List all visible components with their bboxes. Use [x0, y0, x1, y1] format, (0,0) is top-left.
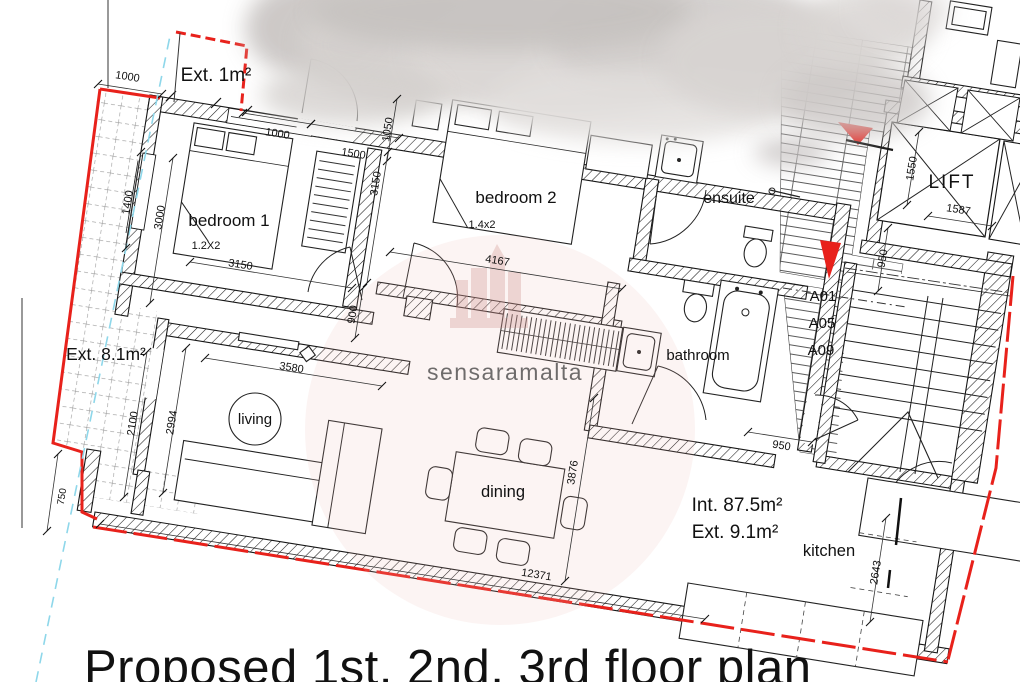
unit-label-a05: A05	[809, 315, 836, 332]
upper-unit-fixture	[946, 1, 992, 35]
censored-blur-region	[260, 65, 440, 125]
balcony-left-edge	[174, 33, 180, 102]
kitchen-counter-div	[851, 588, 908, 597]
area-label-internal: Int. 87.5m²	[692, 495, 783, 516]
dim-text-d3000: 3000	[152, 204, 168, 230]
kitchen-appliance-mark-b	[888, 570, 890, 588]
dim-tick	[182, 344, 190, 352]
unit-label-a01: A01	[810, 288, 837, 305]
area-label-external: Ext. 9.1m²	[692, 522, 779, 543]
censored-blur-region	[780, 62, 930, 138]
dim-tick	[169, 154, 177, 162]
floor-plan-canvas: sensaramalta bedroom 11.2X2bedroom 21.4x…	[0, 0, 1020, 682]
dim-tick	[146, 299, 154, 307]
watermark-text: sensaramalta	[427, 359, 583, 385]
dim-text-d950b: 950	[771, 439, 791, 454]
dim-text-d3150b: 3150	[227, 257, 253, 273]
kitchen-counter-right	[859, 478, 1020, 562]
room-label-bedroom2: bedroom 2	[475, 188, 556, 207]
room-label-bedroom1: bedroom 1	[188, 211, 269, 230]
bed1-size-label: 1.2X2	[192, 240, 221, 252]
dim-text-d2994: 2994	[164, 409, 180, 435]
wall-ensuite-left	[632, 178, 659, 267]
floor-plan-title: Proposed 1st, 2nd, 3rd floor plan	[84, 640, 811, 682]
room-label-living: living	[238, 411, 272, 428]
area-label-terrace: Ext. 8.1m²	[66, 344, 146, 364]
bed2-size-label: 1.4x2	[469, 219, 496, 231]
floor-plan-page: sensaramalta bedroom 11.2X2bedroom 21.4x…	[0, 0, 1020, 682]
room-label-dining: dining	[481, 483, 525, 501]
wall-bedroom1-bottom	[119, 272, 374, 324]
wardrobe-bedroom1	[302, 151, 361, 253]
dim-tick	[744, 428, 752, 436]
ensuite-toilet	[739, 226, 773, 269]
dim-text-d2643: 2643	[868, 559, 884, 585]
dim-text-d3580: 3580	[278, 360, 304, 376]
room-label-kitchen: kitchen	[803, 542, 855, 560]
bathtub	[703, 280, 778, 402]
dim-tick	[386, 248, 394, 256]
area-label-balcony: Ext. 1m²	[181, 65, 252, 86]
dim-tick	[884, 224, 892, 232]
dim-text-d1000a: 1000	[114, 69, 140, 85]
censored-blur-region	[754, 138, 830, 166]
room-label-ensuite: ensuite	[703, 190, 755, 207]
dim-tick	[186, 258, 194, 266]
unit-label-a09: A09	[808, 342, 835, 359]
upper-unit-cabinet	[991, 40, 1020, 87]
room-label-bathroom: bathroom	[666, 347, 729, 364]
dim-line-d750	[47, 454, 58, 531]
dim-tick	[94, 80, 102, 88]
room-label-lift: LIFT	[928, 172, 975, 193]
bathroom-toilet	[678, 280, 714, 324]
dim-tick	[201, 354, 209, 362]
dim-text-d750: 750	[56, 487, 70, 506]
